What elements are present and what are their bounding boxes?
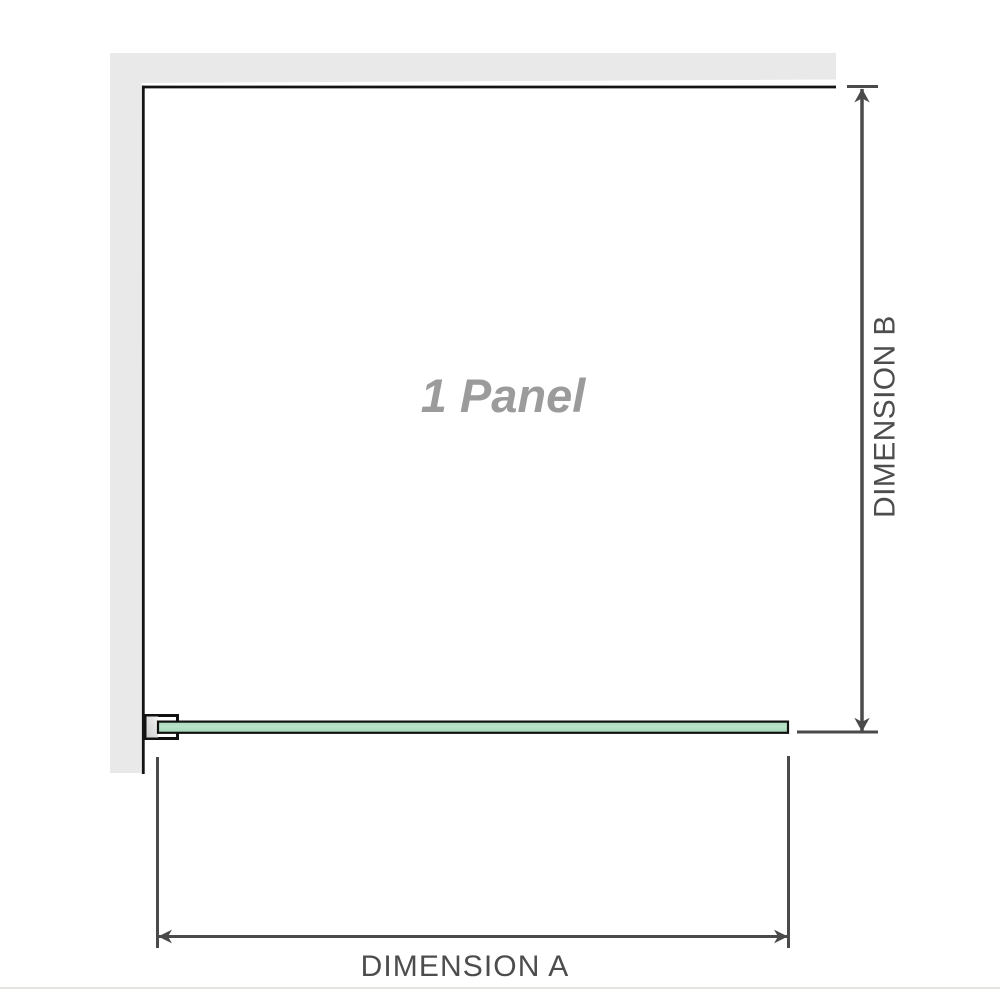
svg-text:1 Panel: 1 Panel	[421, 369, 587, 422]
svg-text:DIMENSION B: DIMENSION B	[869, 315, 902, 518]
svg-text:DIMENSION A: DIMENSION A	[361, 950, 570, 983]
